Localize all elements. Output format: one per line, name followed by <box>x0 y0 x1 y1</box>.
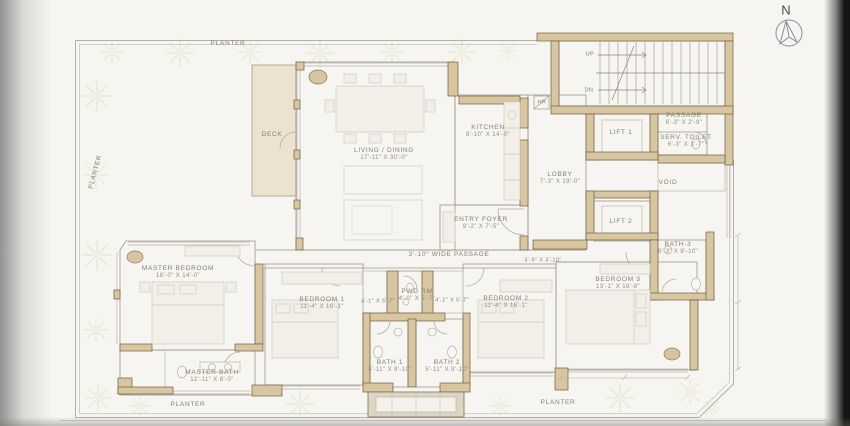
label-dim-foyer3: 3'-9" x 3'-10" <box>524 258 561 265</box>
label-planter-bottom-left: PLANTER <box>171 401 206 409</box>
label-living-dining: LIVING / DINING 17'-11" x 30'-0" <box>354 147 414 163</box>
label-bath3: BATH-3 6'-3" x 9'-10" <box>658 241 698 257</box>
label-lift1: LIFT 1 <box>610 129 633 137</box>
label-master-bedroom: MASTER BEDROOM 18'-0" x 14'-0" <box>142 265 214 281</box>
label-lift2: LIFT 2 <box>610 218 633 226</box>
label-dim-dress-right: 4'-1" x 5'-7" <box>435 298 469 305</box>
service-shaft <box>368 392 464 417</box>
page-fold-line <box>60 420 826 421</box>
label-passage: PASSAGE 6'-3" x 2'-9" <box>666 112 702 128</box>
label-bath1: BATH 1 5'-11" x 9'-10" <box>368 359 411 375</box>
floor-plan-page: N PLANTER PLANTER PLANTER PLANTER DECK L… <box>0 0 850 426</box>
label-stairs-dn: DN <box>585 88 594 95</box>
label-bedroom3: BEDROOM 3 13'-1" x 16'-9" <box>595 276 640 292</box>
label-planter-bottom-right: PLANTER <box>541 399 576 407</box>
label-bedroom1: BEDROOM 1 11'-4" x 16'-1" <box>299 296 344 312</box>
label-bath2: BATH 2 5'-11" x 9'-10" <box>425 359 468 375</box>
label-kitchen: KITCHEN 8'-10" x 14'-0" <box>466 124 510 140</box>
label-stairs-up: UP <box>586 52 594 59</box>
north-label: N <box>781 3 790 18</box>
label-master-bath: MASTER BATH 12'-11" x 6'-0" <box>185 369 238 385</box>
label-pwd-rm: PWD RM 4'-0" x 5'-7" <box>399 288 435 304</box>
label-wide-passage: 3'-10" WIDE PASSAGE <box>408 251 489 259</box>
label-void: VOID <box>659 179 678 187</box>
label-hr: HR <box>538 100 547 107</box>
label-planter-top: PLANTER <box>211 40 246 48</box>
label-bedroom2: BEDROOM 2 11'-4" x 16'-1" <box>483 295 528 311</box>
label-entry-foyer: ENTRY FOYER 9'-2" x 7'-5" <box>454 216 508 232</box>
label-deck: DECK <box>262 131 283 139</box>
staircase <box>596 42 725 104</box>
north-compass <box>776 20 802 46</box>
label-serv-toilet: SERV. TOILET 6'-3" x 3'-7" <box>660 134 712 150</box>
label-lobby: LOBBY 7'-3" x 19'-0" <box>540 171 580 187</box>
label-dim-dress-left: 4'-1" x 5'-7" <box>361 299 395 306</box>
